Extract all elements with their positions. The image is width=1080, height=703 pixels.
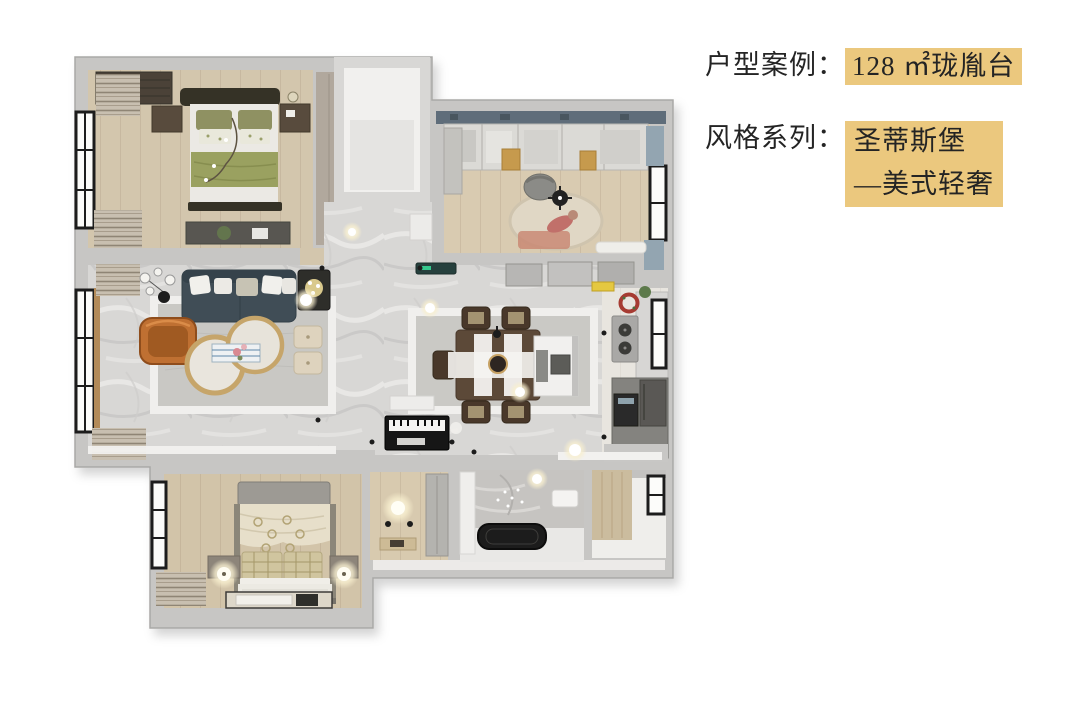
- style-value-highlight: 圣蒂斯堡—美式轻奢: [845, 121, 1003, 207]
- yellow-sign: [592, 282, 614, 291]
- window-study: [650, 166, 666, 240]
- room-bathroom: [460, 468, 584, 562]
- dining-table: [448, 330, 548, 400]
- plant: [639, 286, 651, 298]
- nightstand: [152, 106, 182, 132]
- window-kitchen: [652, 300, 666, 368]
- room-second-bedroom: [152, 474, 362, 608]
- case-row: 户型案例：128 ㎡珑胤台: [705, 48, 1045, 85]
- room-master-bedroom: [76, 70, 342, 265]
- bed-master: [180, 88, 282, 211]
- pendant-lamp: [288, 92, 298, 102]
- kitchen-island: [534, 336, 578, 396]
- fixture: [552, 490, 578, 507]
- blinds: [92, 428, 146, 460]
- window-bedroom2: [152, 482, 166, 568]
- case-label: 户型案例：: [705, 48, 845, 82]
- blinds: [96, 74, 140, 116]
- blinds: [96, 264, 140, 296]
- bedside-lamp: [209, 559, 239, 589]
- room-guest: [592, 470, 666, 558]
- cooktop: [612, 316, 638, 362]
- appliances: [604, 378, 668, 462]
- upper-cabinet: [598, 262, 634, 284]
- foot-rug: [226, 592, 332, 608]
- upper-cabinet: [506, 264, 542, 286]
- room-study: [436, 111, 666, 270]
- case-value-highlight: 128 ㎡珑胤台: [845, 48, 1022, 85]
- curtain: [644, 240, 664, 270]
- room-cloakroom: [334, 57, 430, 202]
- window-living: [76, 290, 94, 432]
- built-in-cabinets: [444, 124, 648, 170]
- curtain: [646, 126, 664, 166]
- blinds: [94, 210, 142, 248]
- style-value-line2: —美式轻奢: [854, 167, 994, 201]
- style-value-line1: 圣蒂斯堡: [854, 124, 994, 158]
- bathroom-door: [460, 472, 475, 554]
- nightstand: [280, 104, 310, 132]
- style-label: 风格系列：: [705, 121, 845, 155]
- window-master: [76, 112, 94, 228]
- bathtub: [478, 524, 546, 549]
- info-panel: 户型案例：128 ㎡珑胤台 风格系列：圣蒂斯堡—美式轻奢: [705, 48, 1045, 207]
- room-utility: [370, 472, 448, 560]
- hallway-cabinet: [410, 214, 432, 240]
- page: 户型案例：128 ㎡珑胤台 风格系列：圣蒂斯堡—美式轻奢: [0, 0, 1080, 703]
- style-row: 风格系列：圣蒂斯堡—美式轻奢: [705, 121, 1045, 207]
- bedside-lamp: [329, 559, 359, 589]
- pendant-light: [493, 330, 501, 338]
- plaid-pillows: [242, 552, 322, 582]
- sofa: [182, 270, 296, 322]
- upper-cabinet: [548, 262, 592, 286]
- window-guest: [648, 476, 664, 514]
- tv-cabinet: [186, 222, 290, 244]
- blinds: [156, 572, 206, 606]
